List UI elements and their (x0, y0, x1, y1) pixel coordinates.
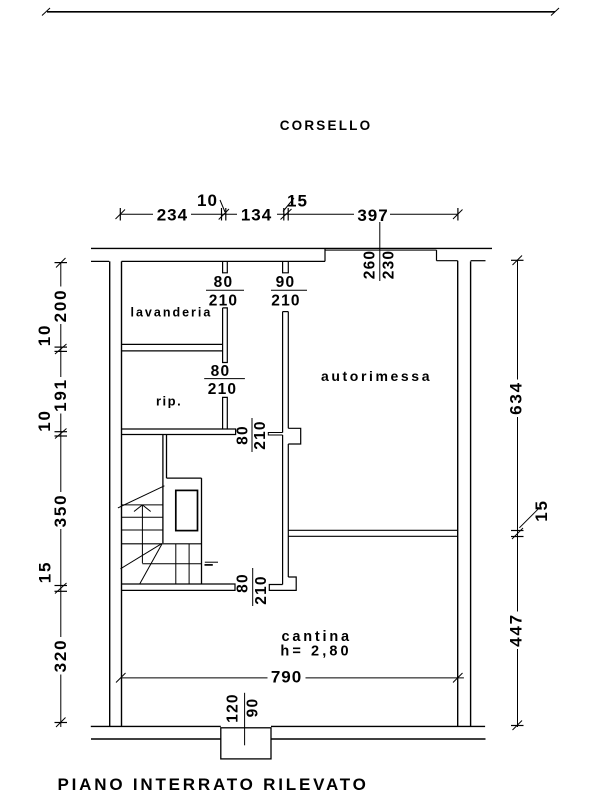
svg-text:447: 447 (507, 613, 526, 647)
svg-text:210: 210 (253, 575, 270, 604)
svg-text:h= 2,80: h= 2,80 (280, 644, 351, 660)
svg-text:PIANO INTERRATO RILEVATO: PIANO INTERRATO RILEVATO (58, 775, 369, 794)
svg-text:397: 397 (357, 206, 388, 225)
svg-text:80: 80 (214, 274, 234, 291)
svg-text:230: 230 (381, 250, 398, 279)
svg-text:10: 10 (35, 409, 54, 432)
svg-text:90: 90 (245, 698, 262, 718)
svg-text:120: 120 (225, 693, 242, 722)
svg-text:cantina: cantina (282, 629, 352, 645)
svg-text:210: 210 (209, 293, 238, 310)
svg-text:350: 350 (51, 494, 70, 528)
svg-text:80: 80 (235, 425, 252, 445)
svg-text:260: 260 (362, 250, 379, 279)
svg-text:15: 15 (287, 192, 308, 211)
svg-text:234: 234 (157, 206, 188, 225)
svg-text:210: 210 (271, 293, 300, 310)
svg-text:134: 134 (241, 206, 272, 225)
svg-text:15: 15 (36, 561, 55, 584)
svg-text:10: 10 (35, 324, 54, 347)
svg-text:210: 210 (252, 420, 269, 449)
svg-text:790: 790 (271, 668, 302, 687)
svg-text:210: 210 (208, 381, 237, 398)
svg-text:90: 90 (276, 274, 296, 291)
svg-text:autorimessa: autorimessa (321, 368, 432, 384)
svg-text:200: 200 (51, 289, 70, 323)
svg-text:15: 15 (532, 499, 551, 522)
svg-text:CORSELLO: CORSELLO (280, 118, 373, 133)
svg-text:634: 634 (507, 381, 526, 415)
svg-text:rip.: rip. (156, 394, 182, 409)
svg-text:lavanderia: lavanderia (131, 306, 213, 320)
svg-text:80: 80 (211, 363, 231, 380)
svg-text:191: 191 (51, 378, 70, 412)
svg-text:320: 320 (51, 639, 70, 673)
svg-text:10: 10 (197, 191, 218, 210)
svg-text:80: 80 (235, 573, 252, 593)
